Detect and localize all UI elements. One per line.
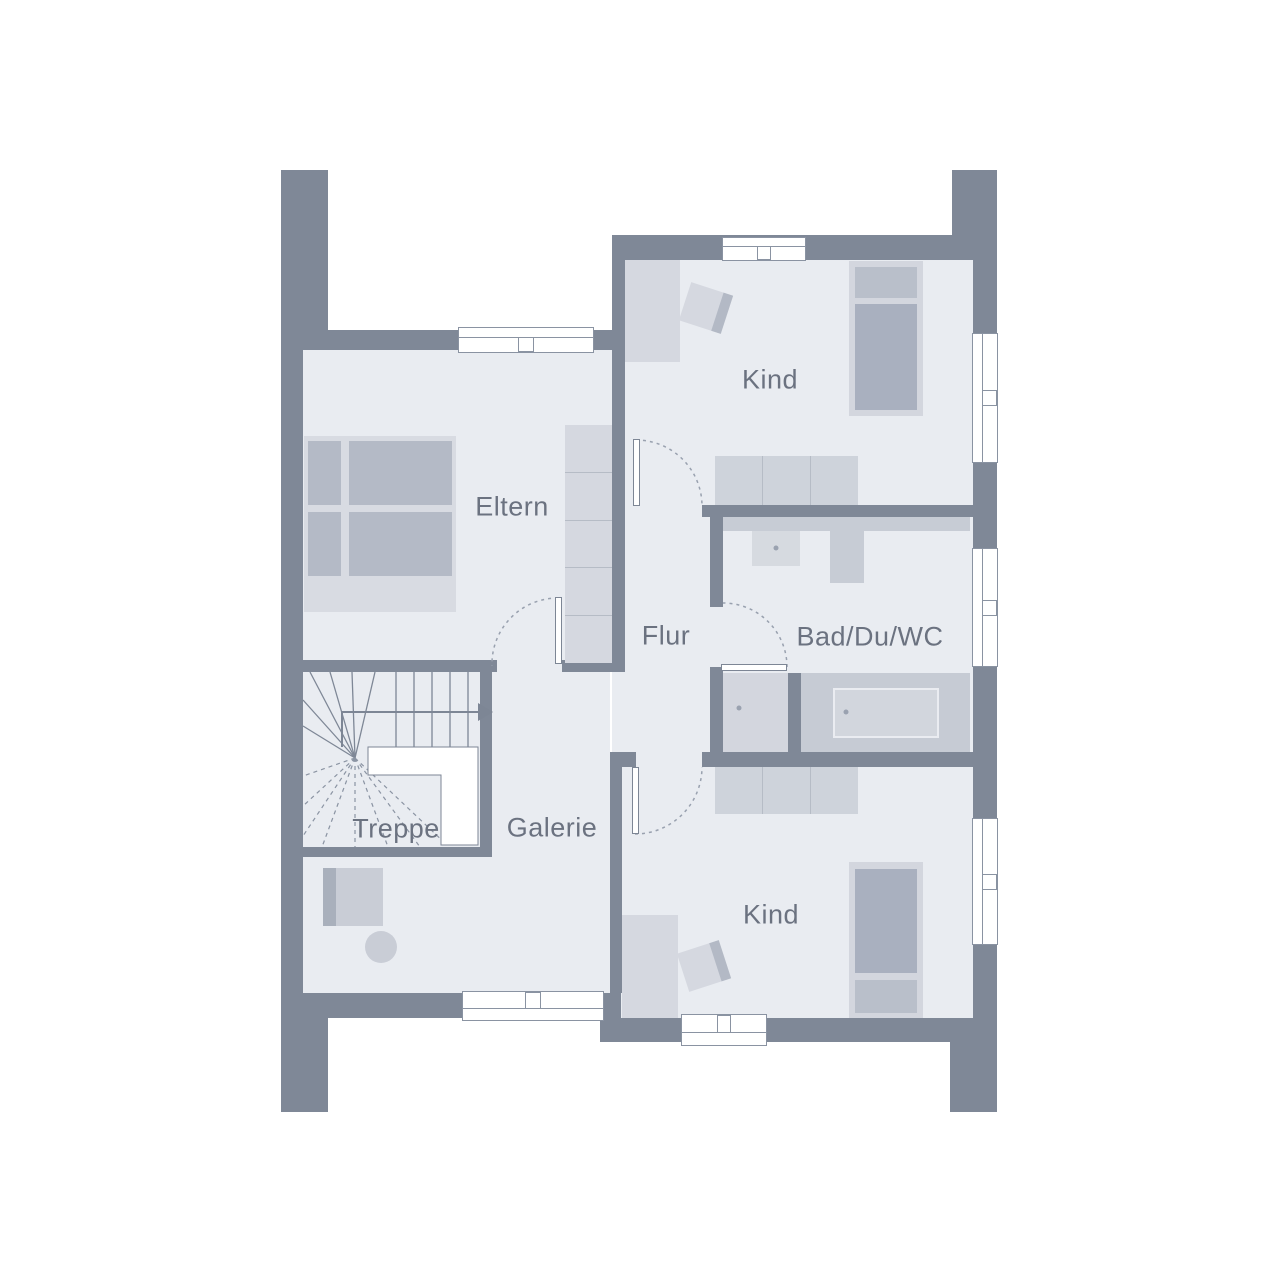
door-leaf-bad [721, 664, 787, 671]
window-kind-top-east [972, 333, 998, 463]
walking-line-arrow-icon [342, 703, 493, 747]
winder-staircase-icon [303, 672, 468, 758]
door-arc-bad [723, 603, 787, 667]
window-kind-top-north [722, 237, 806, 261]
room-label-kind-top: Kind [742, 365, 798, 396]
room-label-treppe: Treppe [352, 814, 440, 845]
door-arc-eltern [492, 598, 558, 666]
window-kind-bottom-east [972, 818, 998, 945]
window-eltern-north [458, 327, 594, 353]
room-label-flur: Flur [642, 621, 691, 652]
door-leaf-kind-bottom [632, 767, 639, 834]
window-mullion [717, 1015, 731, 1033]
window-galerie-south [462, 991, 604, 1021]
floor-plan: Kind Eltern Flur Bad/Du/WC Treppe Galeri… [0, 0, 1280, 1280]
room-label-kind-bottom: Kind [743, 900, 799, 931]
window-bad-east [972, 548, 998, 667]
plan-linework [0, 0, 1280, 1280]
door-leaf-eltern [555, 597, 562, 664]
window-mullion [982, 600, 997, 616]
window-mullion [518, 337, 534, 352]
room-label-eltern: Eltern [475, 492, 549, 523]
room-label-bad: Bad/Du/WC [796, 622, 943, 653]
window-mullion [525, 992, 541, 1009]
door-arc-kind-bottom [635, 767, 702, 834]
door-arc-kind-top [636, 440, 702, 506]
window-mullion [757, 246, 771, 260]
door-leaf-kind-top [633, 439, 640, 506]
room-label-galerie: Galerie [507, 813, 598, 844]
window-mullion [982, 390, 997, 406]
window-mullion [982, 874, 997, 890]
window-kind-bottom-south [681, 1014, 767, 1046]
